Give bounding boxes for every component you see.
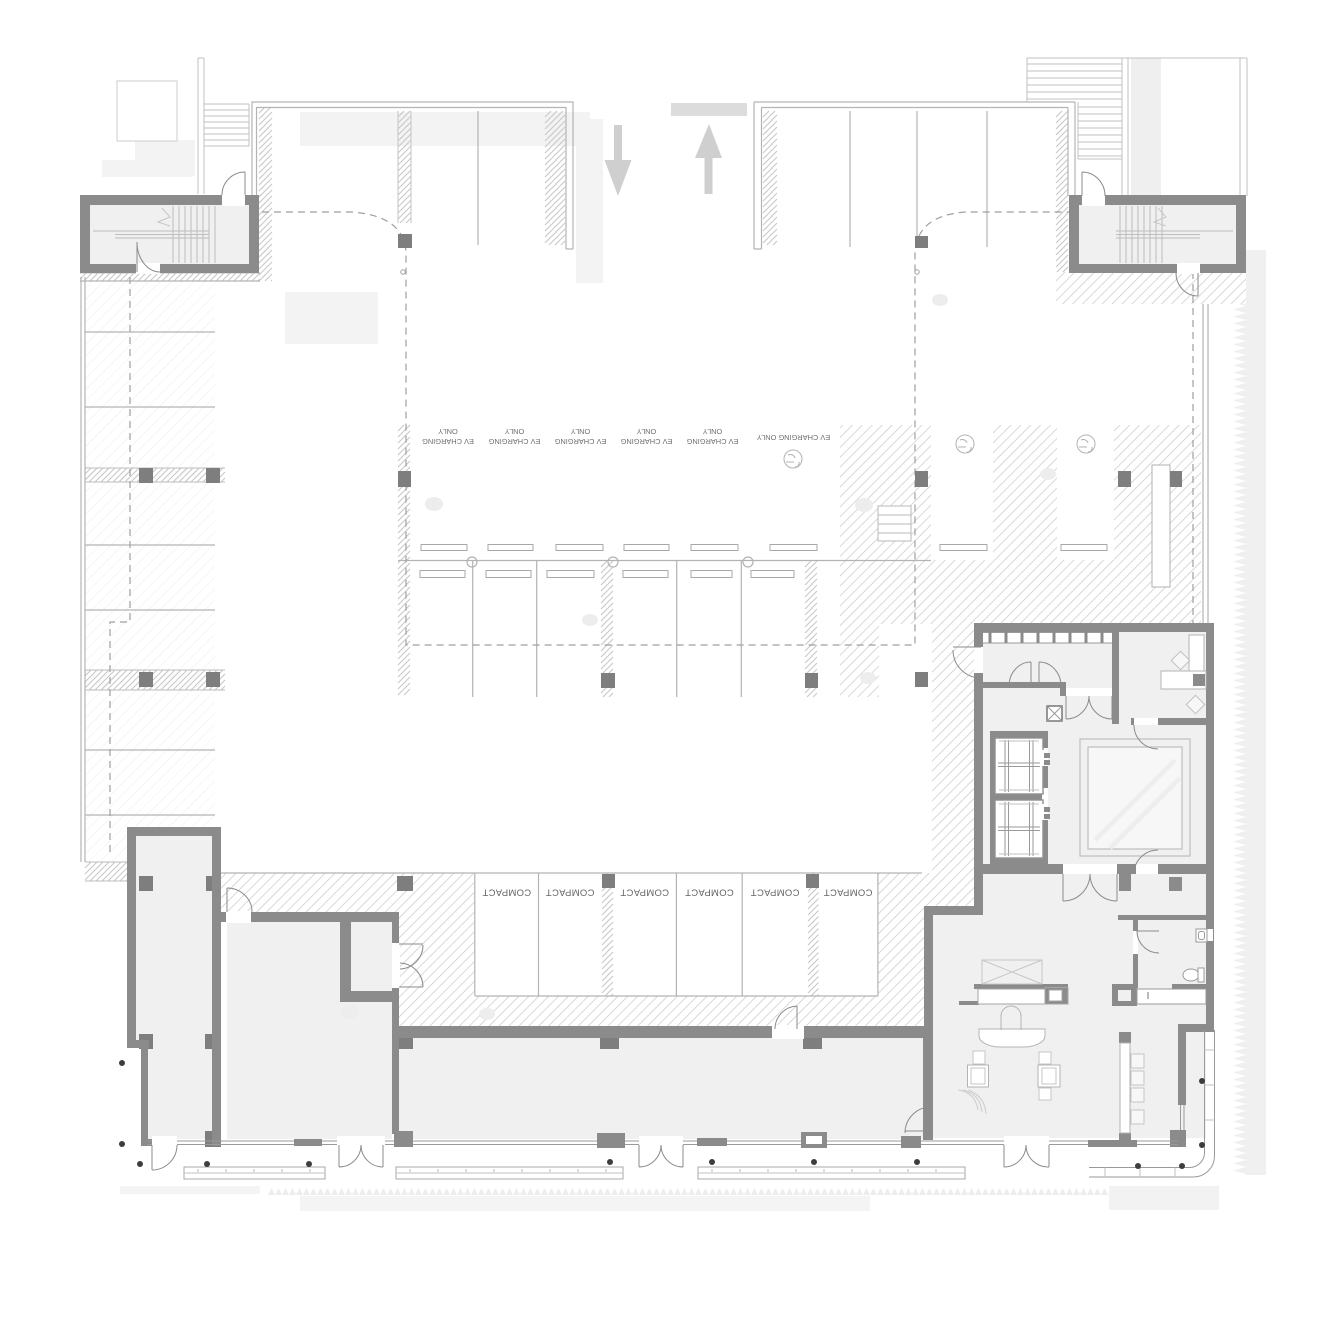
svg-text:COMPACT: COMPACT xyxy=(824,887,873,898)
svg-text:COMPACT: COMPACT xyxy=(482,887,531,898)
svg-text:COMPACT: COMPACT xyxy=(546,887,595,898)
svg-text:COMPACT: COMPACT xyxy=(685,887,734,898)
svg-text:EV CHARGING ONLY: EV CHARGING ONLY xyxy=(757,433,830,442)
svg-text:COMPACT: COMPACT xyxy=(620,887,669,898)
svg-text:COMPACT: COMPACT xyxy=(751,887,800,898)
